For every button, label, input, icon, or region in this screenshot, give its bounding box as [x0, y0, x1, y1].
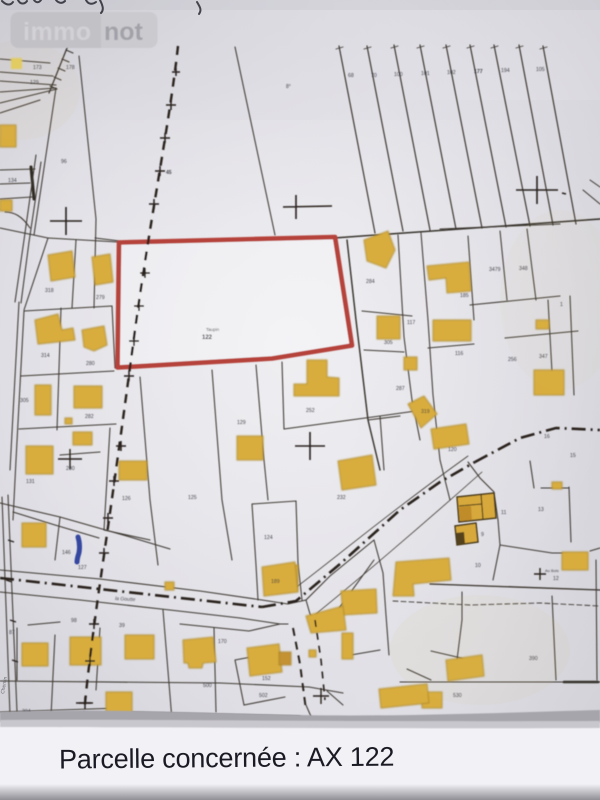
svg-text:282: 282 — [85, 414, 94, 420]
svg-text:Parcelle concernée : AX 122: Parcelle concernée : AX 122 — [59, 742, 395, 775]
svg-text:280: 280 — [66, 466, 75, 472]
svg-text:124: 124 — [264, 535, 273, 541]
svg-text:120: 120 — [448, 447, 457, 453]
svg-text:280: 280 — [86, 361, 95, 367]
svg-text:146: 146 — [62, 550, 71, 556]
svg-text:la Goutte: la Goutte — [115, 596, 136, 603]
svg-text:131: 131 — [26, 479, 35, 485]
svg-text:314: 314 — [41, 353, 50, 359]
svg-text:96: 96 — [61, 159, 67, 165]
svg-text:319: 319 — [421, 409, 430, 415]
svg-text:194: 194 — [501, 68, 510, 74]
svg-text:105: 105 — [536, 67, 545, 73]
svg-text:16: 16 — [544, 434, 550, 440]
svg-text:127: 127 — [78, 565, 87, 571]
svg-text:500: 500 — [203, 683, 212, 689]
svg-text:189: 189 — [271, 579, 280, 585]
svg-text:3479: 3479 — [489, 267, 501, 273]
svg-text:318: 318 — [45, 288, 54, 294]
svg-text:8°: 8° — [286, 84, 291, 90]
svg-text:Au Bois: Au Bois — [545, 568, 559, 573]
svg-text:12: 12 — [553, 576, 559, 582]
svg-text:134: 134 — [8, 178, 17, 184]
svg-text:Taupin: Taupin — [206, 327, 220, 332]
svg-text:502: 502 — [259, 693, 268, 699]
svg-text:122: 122 — [202, 335, 213, 341]
svg-text:70: 70 — [371, 73, 377, 79]
svg-text:102: 102 — [447, 70, 456, 76]
svg-text:284: 284 — [366, 279, 375, 285]
svg-text:10: 10 — [475, 563, 481, 569]
svg-text:305: 305 — [384, 340, 393, 346]
svg-text:177: 177 — [474, 69, 483, 75]
svg-text:232: 232 — [337, 495, 346, 501]
svg-text:152: 152 — [262, 676, 271, 682]
svg-text:39: 39 — [119, 623, 125, 629]
svg-text:129: 129 — [237, 420, 246, 426]
svg-text:101: 101 — [421, 71, 430, 77]
svg-text:117: 117 — [407, 320, 415, 326]
svg-text:11: 11 — [501, 510, 506, 516]
svg-text:45: 45 — [166, 170, 172, 176]
svg-text:87: 87 — [9, 630, 15, 636]
svg-text:126: 126 — [122, 496, 131, 502]
svg-text:9: 9 — [481, 532, 484, 538]
svg-text:279: 279 — [96, 295, 105, 301]
svg-text:287: 287 — [396, 386, 405, 392]
svg-text:100: 100 — [394, 72, 403, 78]
svg-text:116: 116 — [455, 351, 463, 357]
svg-text:immo: immo — [23, 18, 92, 46]
svg-text:185: 185 — [460, 293, 469, 299]
svg-text:170: 170 — [218, 639, 227, 645]
svg-text:252: 252 — [306, 408, 315, 414]
svg-text:98: 98 — [71, 618, 77, 624]
svg-text:15: 15 — [570, 453, 576, 459]
svg-text:13: 13 — [538, 507, 544, 513]
svg-text:125: 125 — [188, 495, 197, 501]
svg-text:not: not — [104, 18, 144, 46]
svg-text:305: 305 — [20, 398, 29, 404]
svg-text:68: 68 — [348, 73, 354, 79]
